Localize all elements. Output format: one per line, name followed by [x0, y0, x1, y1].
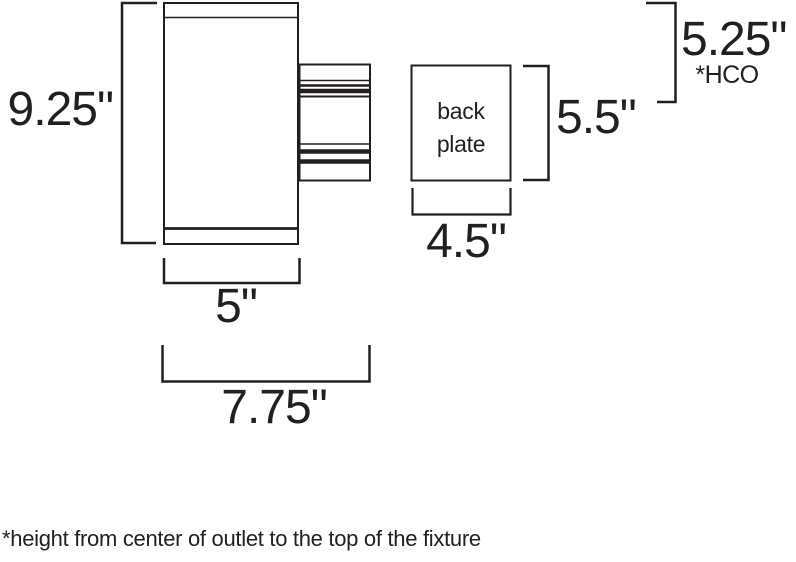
dimension-bracket-height: [122, 3, 157, 243]
backplate-label-line1: back: [411, 95, 511, 128]
backplate-height-dimension-label: 5.5": [556, 94, 636, 142]
backplate-label: back plate: [411, 95, 511, 161]
backplate-label-line2: plate: [411, 128, 511, 161]
body-width-dimension-label: 5": [196, 283, 276, 331]
diagram-linework: [0, 0, 796, 562]
height-dimension-label: 9.25": [0, 86, 113, 134]
dimension-bracket-backplate-width: [413, 188, 511, 215]
hco-dimension-label: 5.25": [681, 16, 786, 64]
dimension-bracket-backplate-height: [523, 66, 549, 180]
backplate-width-dimension-label: 4.5": [406, 218, 526, 266]
hco-tag-label: *HCO: [683, 62, 771, 88]
overall-depth-dimension-label: 7.75": [194, 384, 354, 432]
hco-footnote: *height from center of outlet to the top…: [2, 526, 481, 552]
fixture-dimension-diagram: 9.25" 5" 7.75" 4.5" 5.5" 5.25" *HCO back…: [0, 0, 796, 562]
fixture-body: [164, 3, 298, 244]
dimension-bracket-hco: [646, 3, 676, 102]
dimension-bracket-depth: [163, 345, 370, 382]
